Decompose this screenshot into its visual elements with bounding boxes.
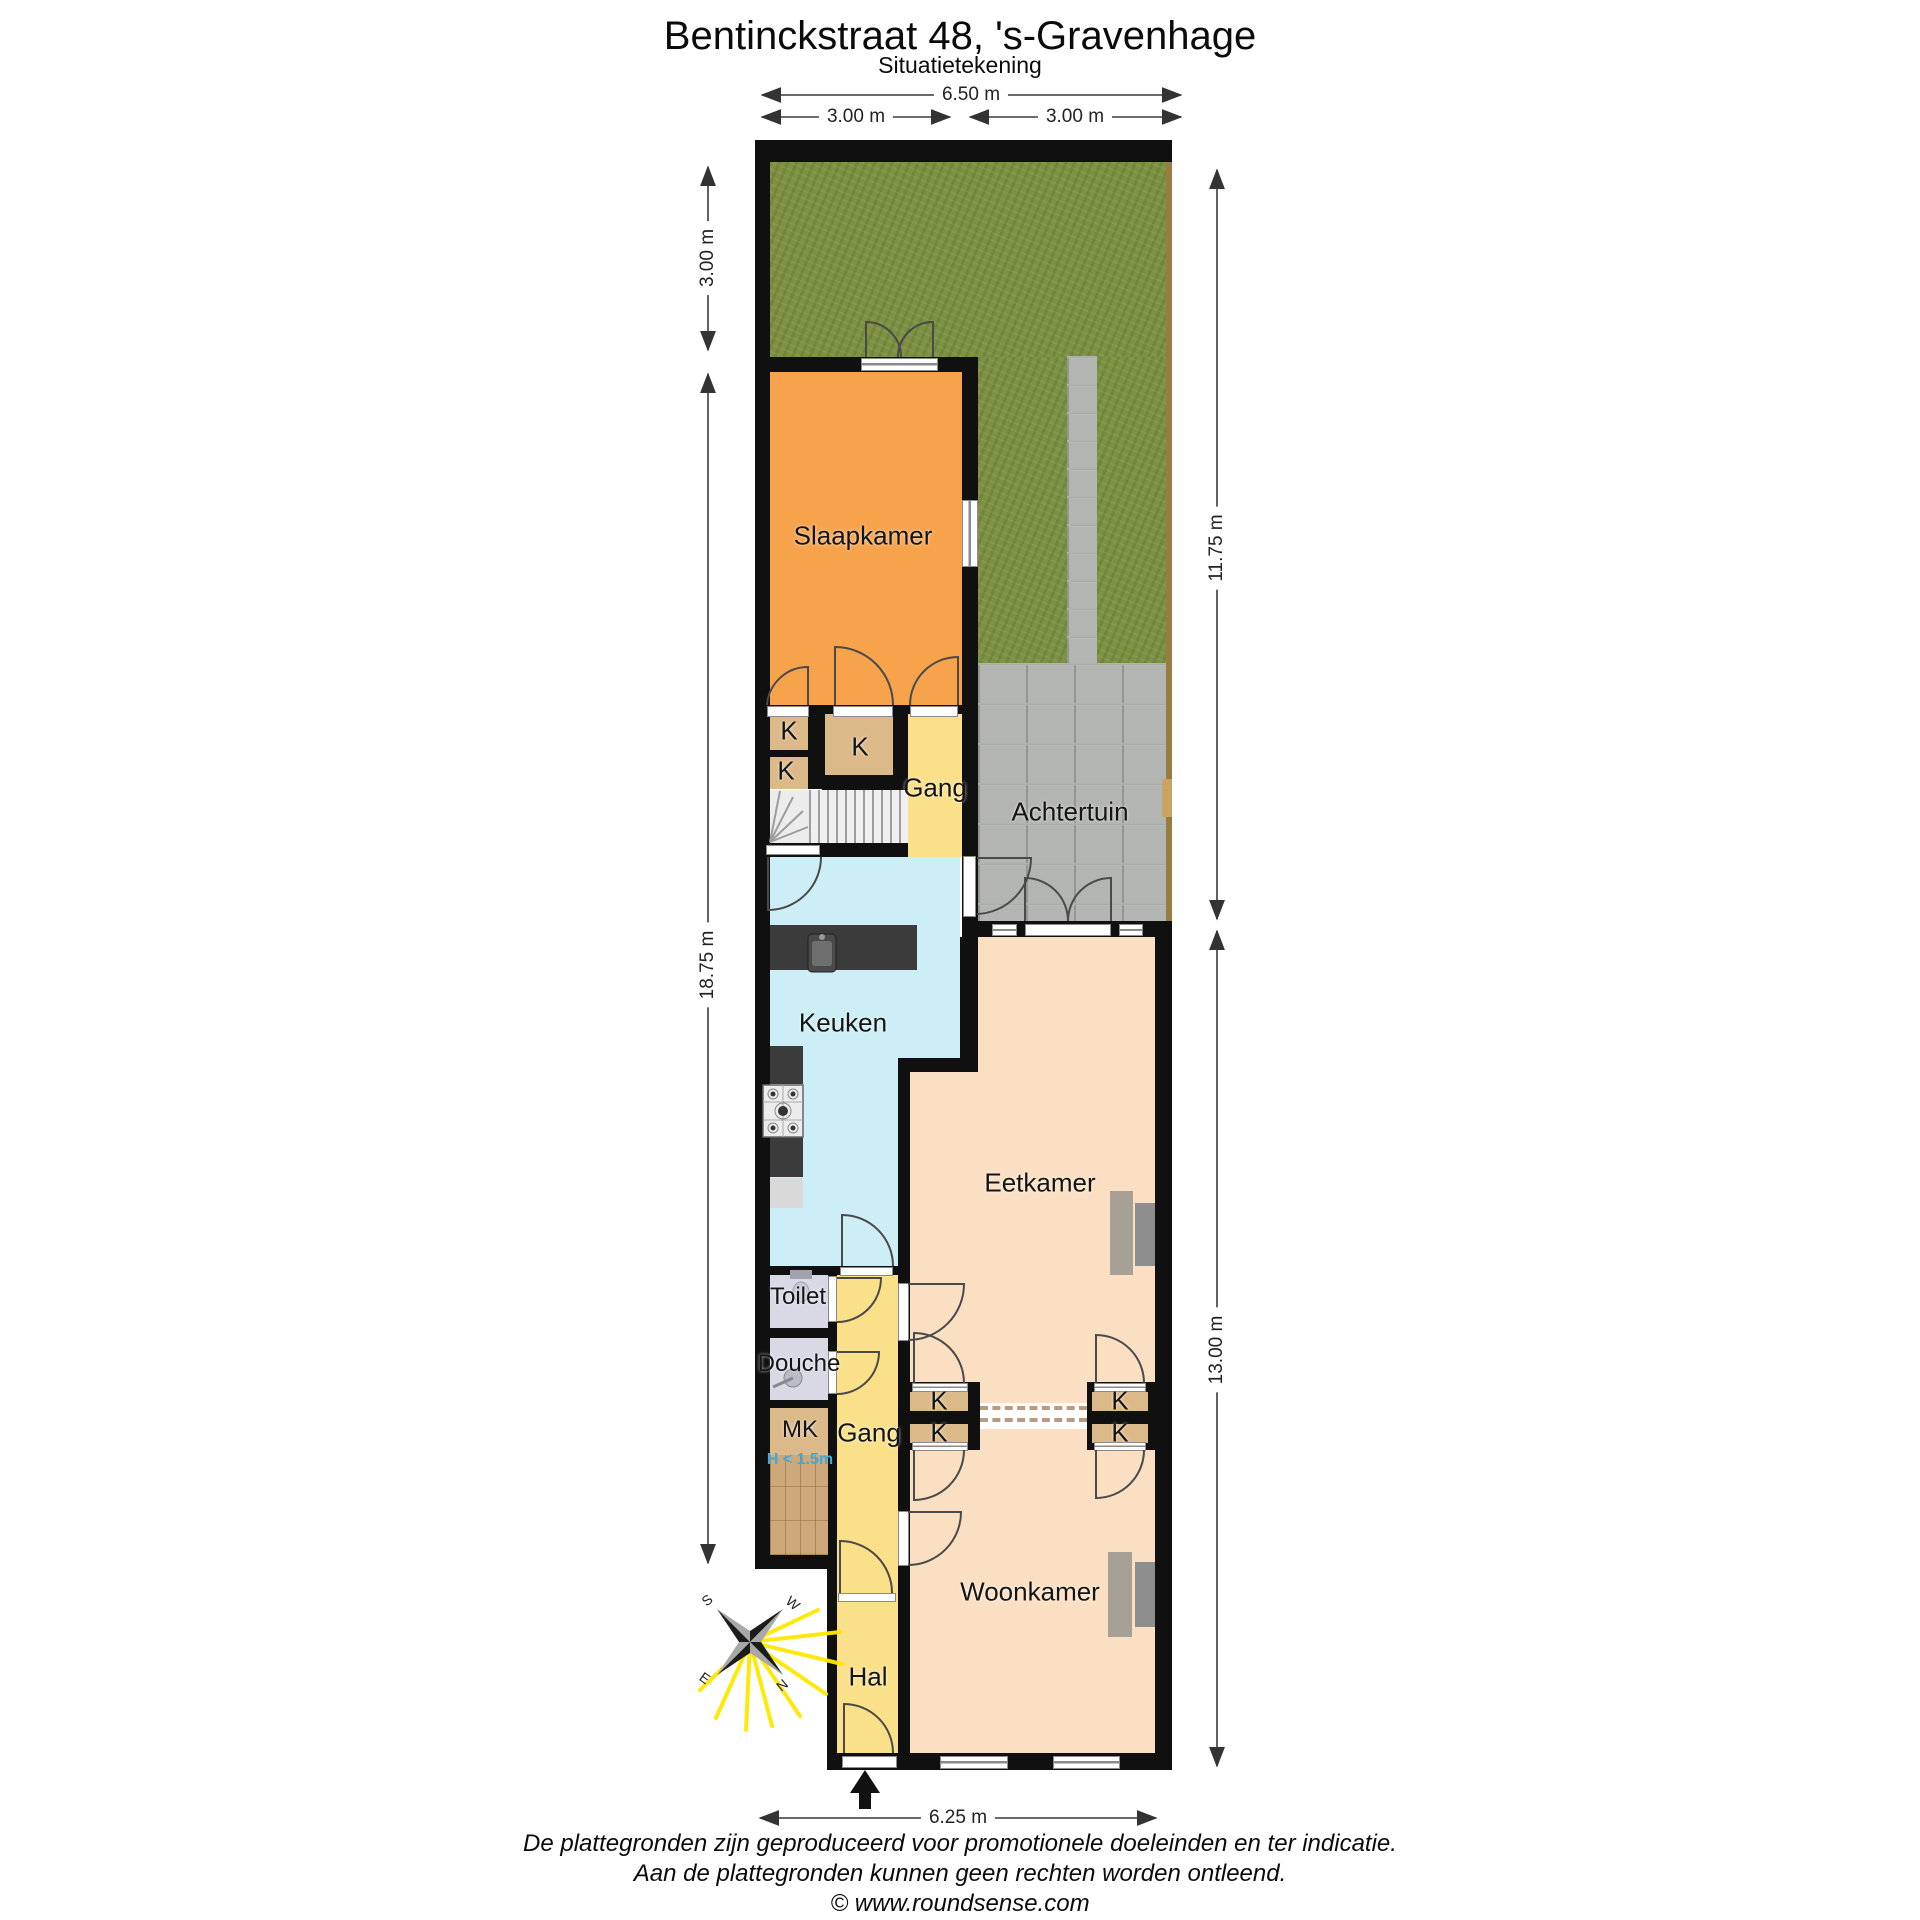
low-height-storage-floor <box>770 1455 828 1555</box>
threshold-keuken-terrace <box>963 856 976 917</box>
wall-toilet-douche <box>763 1328 837 1338</box>
label-woonkamer: Woonkamer <box>960 1577 1100 1608</box>
label-gang-lower: Gang <box>837 1418 901 1449</box>
woonkamer-fireplace-slab <box>1108 1552 1132 1637</box>
dim-top-left: 3.00 m <box>819 106 893 128</box>
floorplan-page: Bentinckstraat 48, 's-Gravenhage Situati… <box>0 0 1920 1920</box>
label-k3: K <box>851 732 868 763</box>
threshold-stairs-keuken <box>766 845 820 855</box>
label-hal: Hal <box>848 1662 887 1693</box>
label-k5: K <box>930 1418 947 1449</box>
woonkamer-window-left <box>940 1756 1008 1769</box>
threshold-gang-slaapkamer <box>910 706 958 717</box>
terrace-paving <box>978 663 1172 923</box>
wall-house-right <box>1155 921 1172 1770</box>
label-gang-upper: Gang <box>903 773 967 804</box>
label-toilet: Toilet <box>770 1283 826 1311</box>
dim-top-total: 6.50 m <box>934 84 1008 106</box>
garden-doors-threshold <box>861 358 938 371</box>
compass-south-label: S <box>698 1591 715 1609</box>
dim-left-house: 18.75 m <box>697 923 719 1008</box>
woonkamer-fireplace-recess <box>1135 1562 1157 1627</box>
woonkamer-window-right <box>1053 1756 1120 1769</box>
compass-east-label: E <box>697 1669 714 1687</box>
footer-disclaimer-line2: Aan de plattegronden kunnen geen rechten… <box>0 1860 1920 1888</box>
footer-copyright: © www.roundsense.com <box>0 1890 1920 1918</box>
kitchen-island-counter <box>766 925 917 970</box>
staircase <box>763 790 908 843</box>
threshold-k3 <box>833 706 893 717</box>
label-keuken: Keuken <box>799 1008 887 1039</box>
label-height-note: H < 1.5m <box>767 1451 833 1469</box>
eetkamer-fireplace-slab <box>1110 1191 1133 1275</box>
label-eetkamer: Eetkamer <box>984 1168 1095 1199</box>
wall-keuken-step <box>898 1058 978 1072</box>
eetkamer-fireplace-recess <box>1135 1203 1157 1266</box>
terrace-sidelight-right <box>1119 924 1143 936</box>
wall-k3-bottom <box>822 775 908 790</box>
label-k6: K <box>1111 1386 1128 1417</box>
label-meterkast: MK <box>782 1416 818 1444</box>
threshold-hal-woonkamer <box>898 1511 909 1566</box>
compass-north-label: N <box>773 1676 791 1695</box>
open-connection-dash-bottom <box>980 1418 1087 1422</box>
wall-hal-left <box>827 1555 837 1767</box>
dim-left-garden: 3.00 m <box>697 221 719 295</box>
wall-keuken-east <box>960 937 978 1062</box>
threshold-gang-hal <box>838 1593 896 1602</box>
terrace-sidelight-left <box>992 924 1017 936</box>
compass-star <box>717 1609 783 1675</box>
garden-grass-top <box>770 160 1172 360</box>
open-connection-dash-top <box>980 1406 1087 1410</box>
wall-douche-mk <box>763 1400 837 1408</box>
compass-west-label: W <box>783 1593 803 1614</box>
label-k4: K <box>930 1386 947 1417</box>
wall-top <box>755 140 1172 162</box>
wall-step-left <box>755 1555 837 1569</box>
label-slaapkamer: Slaapkamer <box>794 521 933 552</box>
stair-treads <box>809 790 908 843</box>
threshold-gang-keuken <box>840 1267 893 1276</box>
dim-right-house: 13.00 m <box>1206 1308 1228 1393</box>
threshold-gang-eetkamer <box>898 1283 909 1341</box>
entrance-arrow <box>850 1770 880 1809</box>
dim-bottom: 6.25 m <box>921 1807 995 1829</box>
page-subtitle: Situatietekening <box>0 52 1920 79</box>
wall-building-right <box>962 372 978 937</box>
room-eetkamer-west <box>908 1072 978 1407</box>
garden-gate <box>1162 779 1172 817</box>
front-door-threshold <box>842 1756 897 1768</box>
label-douche: Douche <box>758 1350 841 1378</box>
dim-right-garden: 11.75 m <box>1206 506 1228 589</box>
garden-path <box>1067 356 1097 668</box>
label-achtertuin: Achtertuin <box>1011 797 1128 828</box>
label-k1: K <box>780 716 797 747</box>
terrace-doors-threshold <box>1025 924 1111 936</box>
label-k7: K <box>1111 1418 1128 1449</box>
threshold-toilet <box>828 1276 837 1322</box>
footer-disclaimer-line1: De plattegronden zijn geproduceerd voor … <box>0 1830 1920 1858</box>
slaapkamer-window <box>962 500 978 567</box>
label-k2: K <box>777 756 794 787</box>
compass-rose <box>700 1609 842 1730</box>
dim-top-right: 3.00 m <box>1038 106 1112 128</box>
